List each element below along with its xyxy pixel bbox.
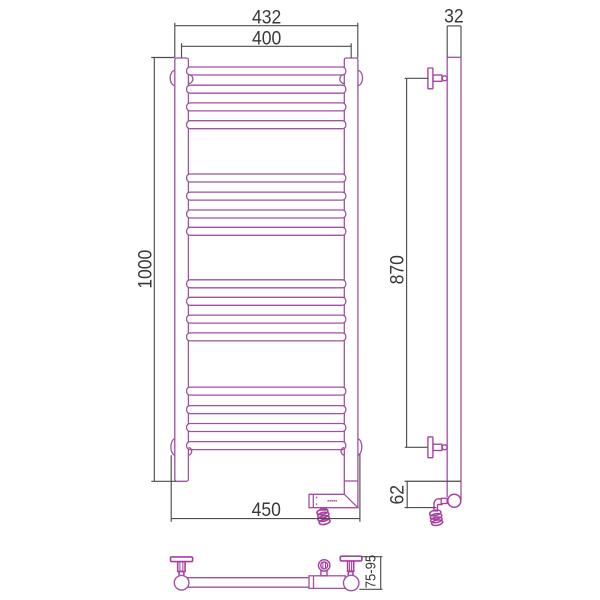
svg-text:75-95: 75-95 — [363, 555, 379, 589]
svg-text:432: 432 — [252, 6, 281, 28]
svg-text:450: 450 — [252, 498, 281, 520]
svg-text:400: 400 — [252, 26, 281, 48]
svg-text:1000: 1000 — [133, 250, 155, 289]
svg-text:32: 32 — [444, 5, 464, 27]
svg-text:870: 870 — [386, 255, 408, 284]
svg-text:62: 62 — [386, 485, 408, 505]
